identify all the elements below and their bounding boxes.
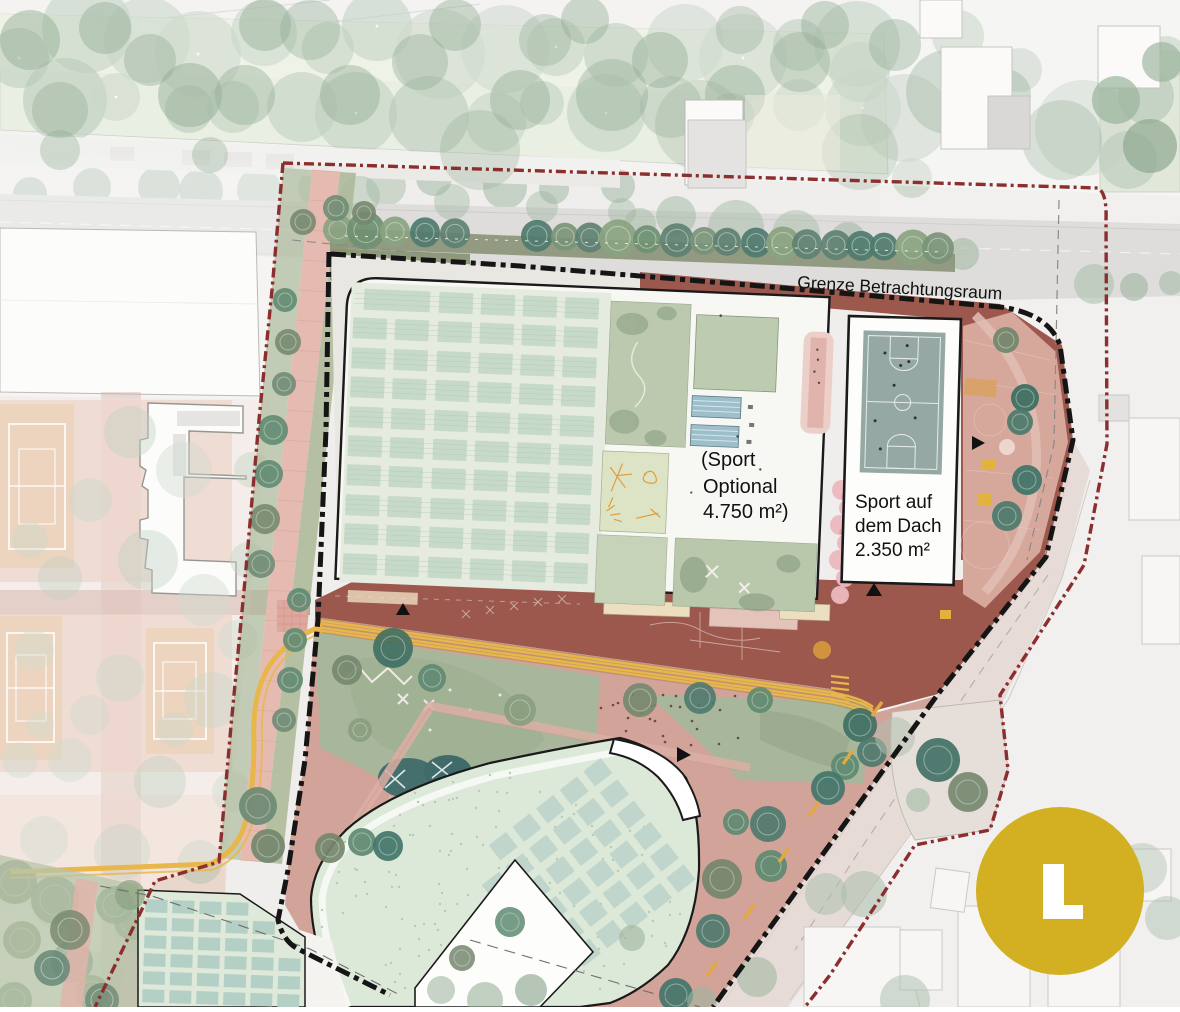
svg-text:4.750 m²): 4.750 m²) (703, 501, 789, 523)
svg-text:(Sport: (Sport (701, 449, 756, 471)
svg-text:2.350 m²: 2.350 m² (855, 540, 930, 561)
svg-text:Sport auf: Sport auf (855, 492, 933, 513)
svg-text:Optional: Optional (703, 476, 778, 498)
svg-text:dem Dach: dem Dach (855, 516, 942, 537)
